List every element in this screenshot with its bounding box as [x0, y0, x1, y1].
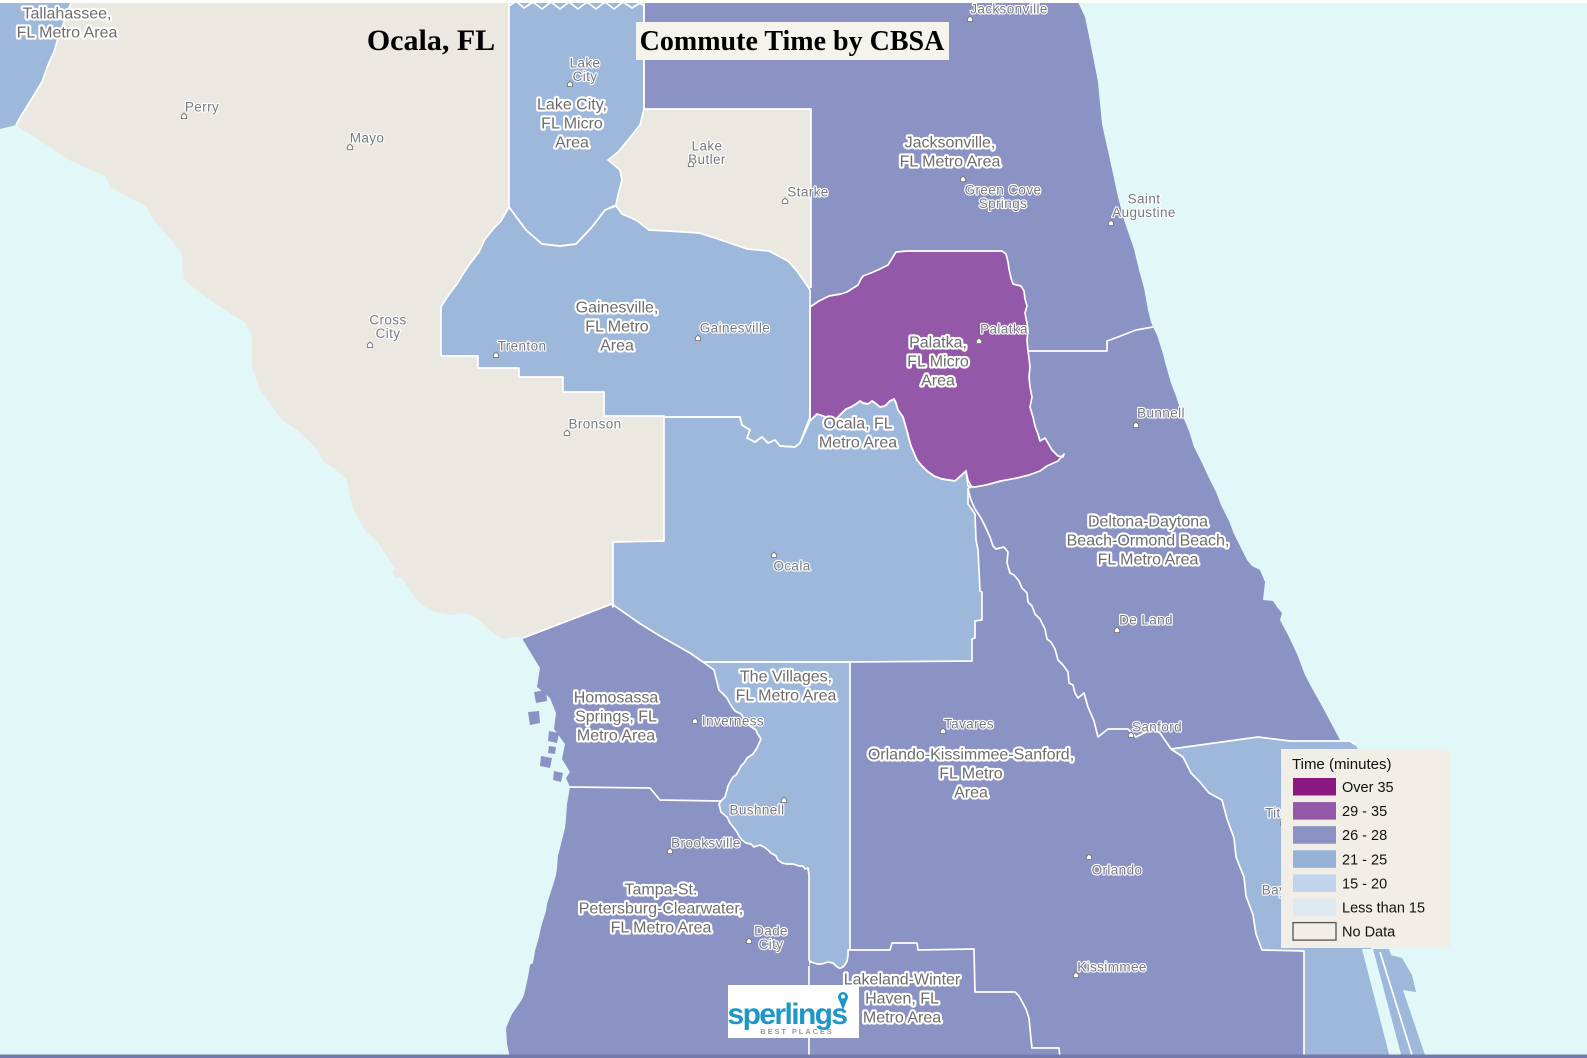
svg-text:Metro Area: Metro Area	[863, 1010, 941, 1027]
svg-text:No Data: No Data	[1342, 925, 1396, 941]
svg-text:FL Metro Area: FL Metro Area	[611, 920, 712, 937]
svg-text:Tavares: Tavares	[944, 717, 994, 732]
svg-text:Kissimmee: Kissimmee	[1077, 960, 1147, 975]
svg-text:Area: Area	[921, 373, 955, 390]
svg-text:Petersburg-Clearwater,: Petersburg-Clearwater,	[579, 901, 744, 918]
svg-text:Jacksonville: Jacksonville	[970, 2, 1048, 17]
svg-text:21 - 25: 21 - 25	[1342, 852, 1387, 868]
svg-text:Less than 15: Less than 15	[1342, 901, 1425, 917]
svg-text:Bunnell: Bunnell	[1137, 406, 1185, 421]
svg-text:15 - 20: 15 - 20	[1342, 876, 1387, 892]
svg-text:BEST PLACES: BEST PLACES	[760, 1027, 833, 1036]
svg-text:Metro Area: Metro Area	[577, 728, 655, 745]
svg-text:Gainesville,: Gainesville,	[576, 300, 659, 317]
svg-text:FL Metro: FL Metro	[939, 766, 1003, 783]
svg-text:Perry: Perry	[185, 100, 219, 115]
svg-text:FL Micro: FL Micro	[541, 116, 603, 133]
svg-text:FL Metro Area: FL Metro Area	[736, 688, 837, 705]
svg-text:Deltona-Daytona: Deltona-Daytona	[1088, 514, 1208, 531]
svg-text:FL Metro Area: FL Metro Area	[1098, 552, 1199, 569]
svg-text:Time (minutes): Time (minutes)	[1292, 756, 1391, 773]
svg-text:City: City	[573, 69, 598, 84]
svg-text:Gainesville: Gainesville	[700, 321, 770, 336]
svg-text:The Villages,: The Villages,	[740, 669, 832, 686]
svg-text:Springs: Springs	[979, 196, 1028, 211]
svg-text:Springs, FL: Springs, FL	[575, 709, 657, 726]
svg-text:Trenton: Trenton	[498, 339, 547, 354]
svg-text:City: City	[759, 937, 784, 952]
svg-text:Brooksville: Brooksville	[671, 836, 741, 851]
svg-text:Ocala, FL: Ocala, FL	[367, 24, 495, 57]
svg-text:Tallahassee,: Tallahassee,	[23, 6, 112, 23]
svg-text:Area: Area	[600, 338, 634, 355]
svg-text:26 - 28: 26 - 28	[1342, 828, 1387, 844]
svg-text:Bushnell: Bushnell	[730, 803, 785, 818]
svg-text:De Land: De Land	[1119, 613, 1173, 628]
svg-text:Mayo: Mayo	[350, 131, 385, 146]
svg-text:Metro Area: Metro Area	[819, 435, 897, 452]
svg-text:Ocala, FL: Ocala, FL	[823, 416, 892, 433]
svg-text:Over 35: Over 35	[1342, 780, 1394, 796]
svg-text:Orlando: Orlando	[1092, 863, 1143, 878]
svg-text:Augustine: Augustine	[1112, 205, 1176, 220]
svg-text:FL Micro: FL Micro	[907, 354, 969, 371]
svg-text:Jacksonville,: Jacksonville,	[905, 135, 996, 152]
svg-text:Ocala: Ocala	[773, 559, 810, 574]
svg-text:Area: Area	[555, 135, 589, 152]
svg-text:Homosassa: Homosassa	[574, 690, 659, 707]
svg-text:FL Metro: FL Metro	[585, 319, 649, 336]
svg-text:Beach-Ormond Beach,: Beach-Ormond Beach,	[1067, 533, 1230, 550]
svg-text:FL Metro Area: FL Metro Area	[900, 154, 1001, 171]
svg-text:Inverness: Inverness	[702, 714, 764, 729]
svg-text:City: City	[376, 326, 401, 341]
svg-text:Haven, FL: Haven, FL	[865, 991, 939, 1008]
svg-text:Lake City,: Lake City,	[537, 97, 607, 114]
svg-text:Palatka: Palatka	[980, 322, 1028, 337]
svg-text:Area: Area	[954, 785, 988, 802]
svg-text:Sanford: Sanford	[1132, 720, 1182, 735]
svg-text:29 - 35: 29 - 35	[1342, 804, 1387, 820]
svg-text:Starke: Starke	[787, 185, 828, 200]
svg-text:Lakeland-Winter: Lakeland-Winter	[844, 972, 961, 989]
svg-text:Tampa-St.: Tampa-St.	[625, 882, 698, 899]
svg-text:Orlando-Kissimmee-Sanford,: Orlando-Kissimmee-Sanford,	[868, 747, 1074, 764]
svg-text:FL Metro Area: FL Metro Area	[17, 25, 118, 42]
svg-text:Bronson: Bronson	[568, 417, 621, 432]
svg-text:Commute Time by CBSA: Commute Time by CBSA	[640, 26, 945, 57]
svg-text:Palatka,: Palatka,	[909, 335, 967, 352]
